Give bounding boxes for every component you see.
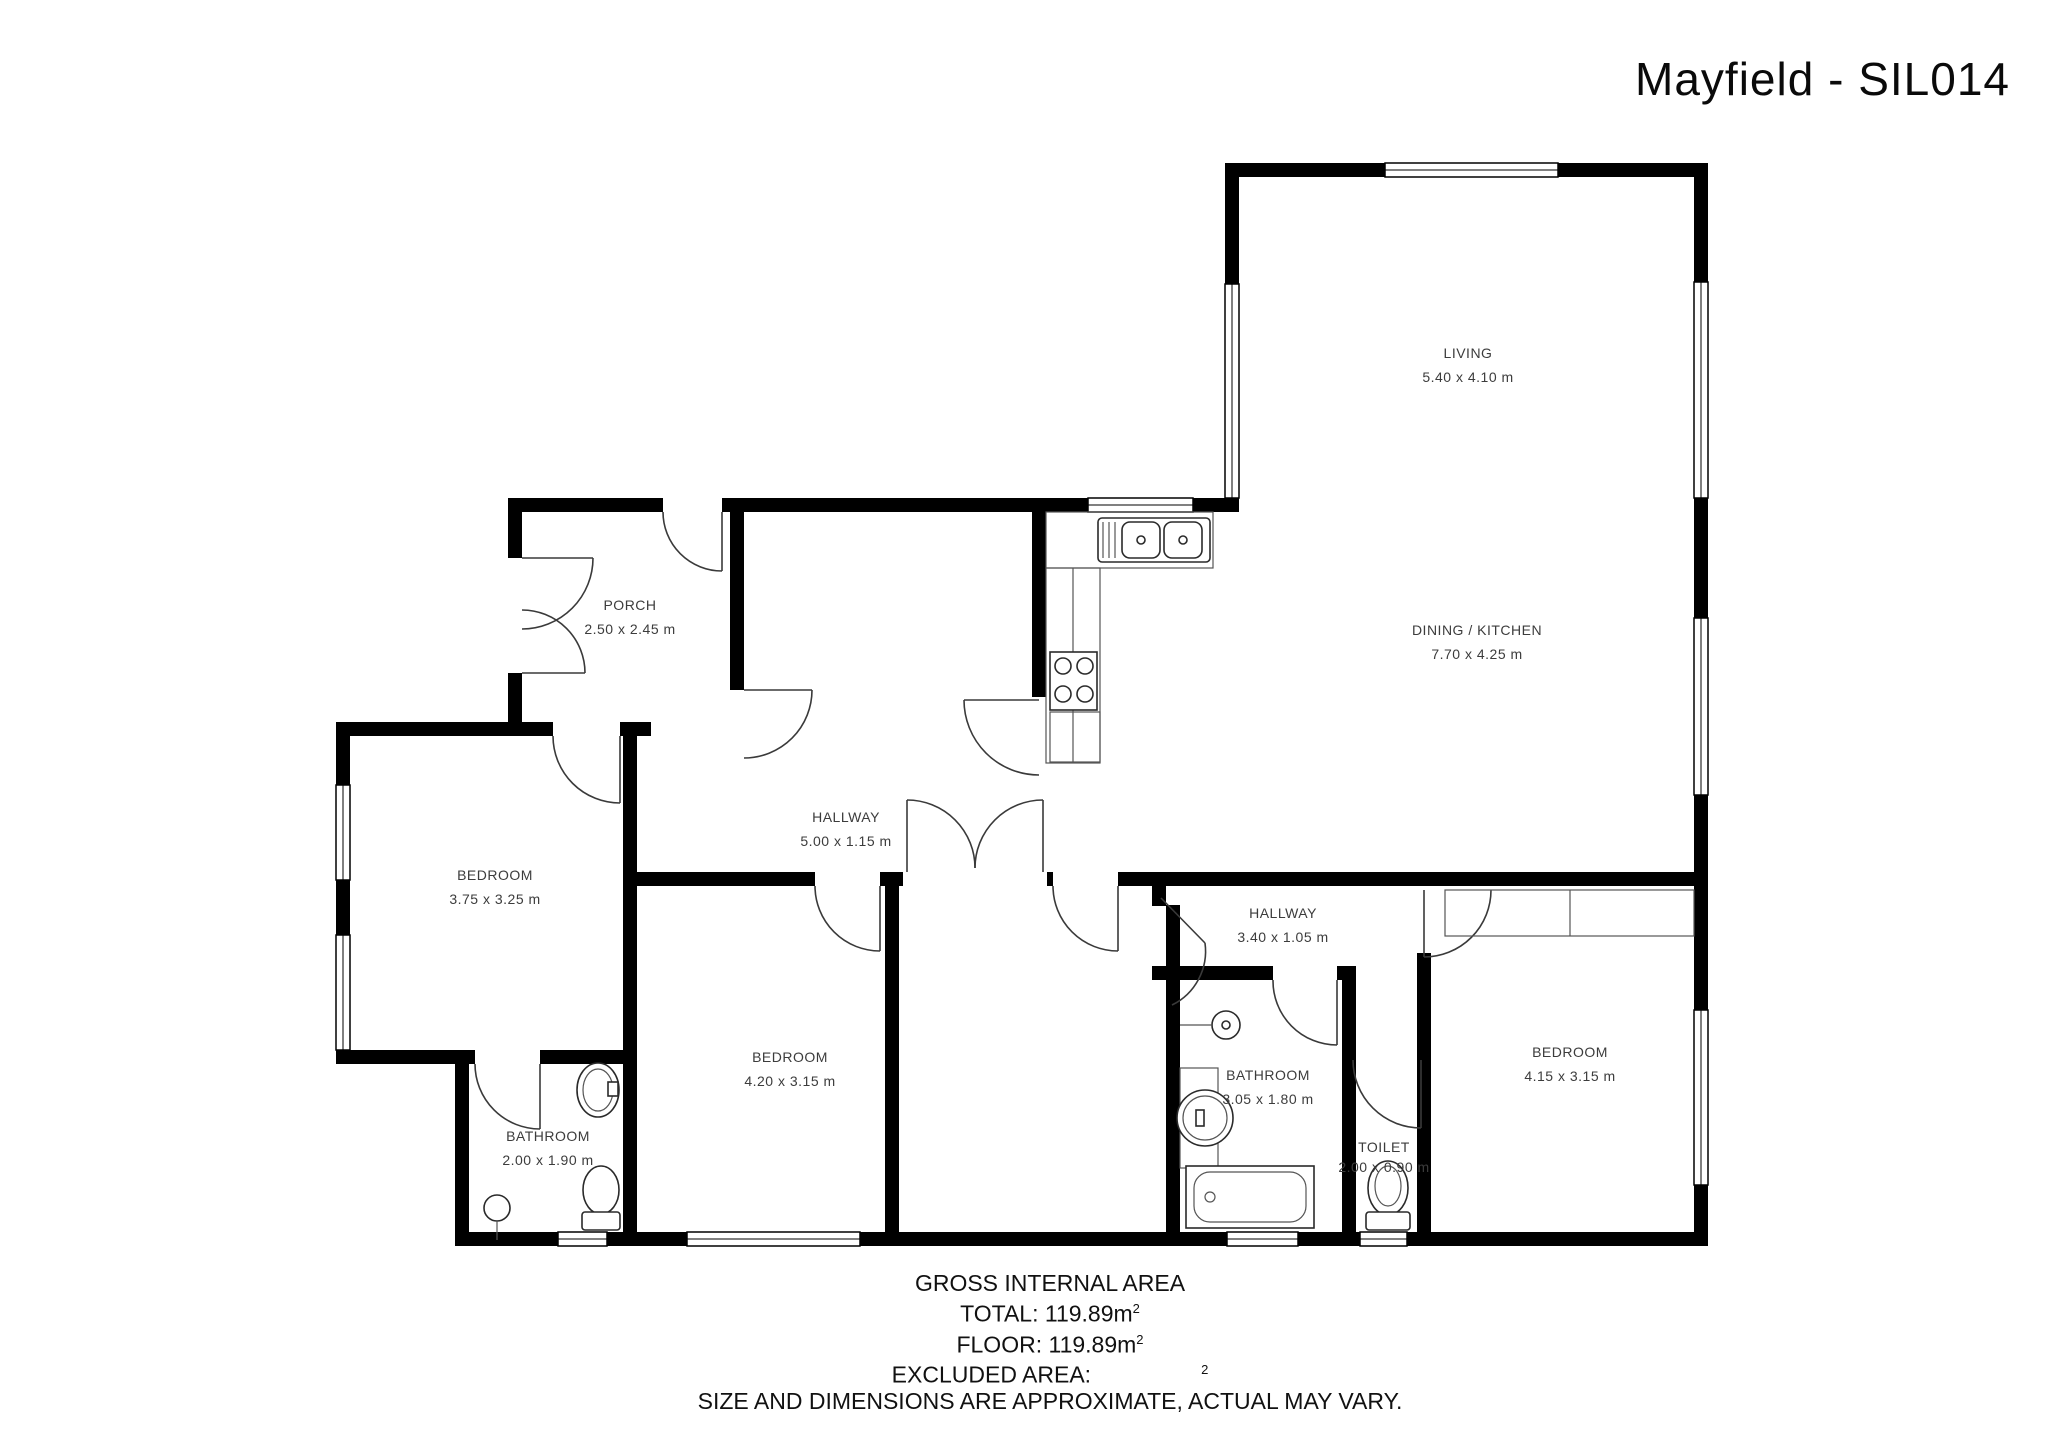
wall <box>540 1050 637 1064</box>
wall <box>1558 163 1708 177</box>
bathroom1-sink-icon <box>577 1063 619 1117</box>
window <box>336 935 350 1050</box>
stove-icon <box>1050 652 1100 762</box>
room-label-bedroom-2: BEDROOM <box>752 1049 828 1065</box>
wall <box>1231 163 1385 177</box>
wall <box>508 498 522 558</box>
wall <box>607 1232 687 1246</box>
wall <box>455 1050 469 1246</box>
wall <box>336 722 553 736</box>
wall <box>1417 953 1431 1246</box>
wall <box>1047 872 1053 886</box>
bedroom1-door <box>553 736 620 803</box>
excluded-area-sup: 2 <box>1201 1362 1208 1377</box>
wall <box>1694 163 1708 282</box>
bathroom2-shower-icon <box>1180 1011 1240 1039</box>
room-label-bedroom-3: BEDROOM <box>1532 1044 1608 1060</box>
window <box>1088 498 1193 512</box>
room-dims-hallway-1: 5.00 x 1.15 m <box>800 833 891 849</box>
room-dims-toilet: 2.00 x 0.90 m <box>1338 1159 1429 1175</box>
room-dims-living: 5.40 x 4.10 m <box>1422 369 1513 385</box>
room-dims-hallway-2: 3.40 x 1.05 m <box>1237 929 1328 945</box>
bedroom2-door <box>815 886 880 951</box>
floorplan-page: { "title": "Mayfield - SIL014", "rooms":… <box>0 0 2048 1448</box>
wall <box>620 722 651 736</box>
walls <box>336 163 1708 1246</box>
wall <box>730 512 744 690</box>
window <box>1360 1232 1407 1246</box>
toilet-door <box>1353 1060 1421 1128</box>
room-label-bathroom-1: BATHROOM <box>506 1128 590 1144</box>
wall <box>1694 498 1708 618</box>
room-dims-porch: 2.50 x 2.45 m <box>584 621 675 637</box>
window <box>1694 618 1708 795</box>
window <box>1694 282 1708 498</box>
window <box>1694 1010 1708 1185</box>
room-dims-bedroom-3: 4.15 x 3.15 m <box>1524 1068 1615 1084</box>
room-dims-dining-kitchen: 7.70 x 4.25 m <box>1431 646 1522 662</box>
windows <box>336 163 1708 1246</box>
wall <box>623 736 637 1246</box>
middle-room-door <box>1053 886 1118 951</box>
kitchen-sink-icon <box>1098 518 1210 562</box>
room-label-bathroom-2: BATHROOM <box>1226 1067 1310 1083</box>
floor-area-text: FLOOR: 119.89m <box>956 1331 1136 1357</box>
wardrobe <box>1445 890 1694 936</box>
wall <box>1118 872 1694 886</box>
gross-internal-area-block: GROSS INTERNAL AREA TOTAL: 119.89m2 FLOO… <box>500 1270 1600 1414</box>
wall <box>1337 966 1356 980</box>
wall <box>336 1050 475 1064</box>
wall <box>336 880 350 935</box>
total-area-text: TOTAL: 119.89m <box>960 1301 1133 1327</box>
room-label-hallway-2: HALLWAY <box>1249 905 1317 921</box>
total-area-sup: 2 <box>1133 1301 1140 1316</box>
window <box>336 785 350 880</box>
wall <box>1152 966 1273 980</box>
room-label-toilet: TOILET <box>1358 1139 1410 1155</box>
excluded-area-text: EXCLUDED AREA: <box>892 1362 1091 1388</box>
bathtub-icon <box>1186 1166 1314 1228</box>
room-dims-bedroom-1: 3.75 x 3.25 m <box>449 891 540 907</box>
disclaimer-line: SIZE AND DIMENSIONS ARE APPROXIMATE, ACT… <box>500 1388 1600 1414</box>
window <box>687 1232 860 1246</box>
bathroom1-toilet-icon <box>582 1166 620 1230</box>
bedroom3-door <box>1424 890 1491 957</box>
floor-area-line: FLOOR: 119.89m2 <box>500 1327 1600 1358</box>
room-label-bedroom-1: BEDROOM <box>457 867 533 883</box>
wall <box>336 736 350 785</box>
wall <box>455 1232 558 1246</box>
wall <box>722 498 1032 512</box>
room-label-dining-kitchen: DINING / KITCHEN <box>1412 622 1542 638</box>
kitchen-door <box>964 700 1039 775</box>
room-label-porch: PORCH <box>603 597 656 613</box>
floorplan-drawing: LIVING 5.40 x 4.10 m DINING / KITCHEN 7.… <box>0 0 2048 1448</box>
wall <box>1694 795 1708 1010</box>
room-dims-bathroom-1: 2.00 x 1.90 m <box>502 1152 593 1168</box>
room-label-living: LIVING <box>1444 345 1493 361</box>
wall <box>1225 163 1239 284</box>
wall <box>1032 498 1088 512</box>
porch-inner-door <box>744 690 812 758</box>
entrance-double-door <box>522 558 593 673</box>
bathroom2-door <box>1273 980 1337 1045</box>
bathroom2-sink-icon <box>1177 1068 1233 1168</box>
room-dims-bedroom-2: 4.20 x 3.15 m <box>744 1073 835 1089</box>
wall <box>1342 966 1356 1246</box>
window <box>1227 1232 1298 1246</box>
bathroom1-door <box>475 1064 540 1129</box>
room-label-hallway-1: HALLWAY <box>812 809 880 825</box>
window <box>558 1232 607 1246</box>
window <box>1385 163 1558 177</box>
room-dims-bathroom-2: 3.05 x 1.80 m <box>1222 1091 1313 1107</box>
floor-area-sup: 2 <box>1136 1332 1143 1347</box>
wall <box>1193 498 1239 512</box>
hallway-double-door <box>907 800 1043 872</box>
wall <box>508 498 663 512</box>
wall <box>637 872 815 886</box>
wall <box>1032 512 1046 697</box>
window <box>1225 284 1239 498</box>
wall <box>1166 905 1180 1246</box>
wall <box>885 872 899 1246</box>
wall <box>1407 1232 1708 1246</box>
porch-exterior-door <box>663 512 722 571</box>
excluded-area-line: EXCLUDED AREA:2 <box>500 1357 1600 1388</box>
gross-internal-area-heading: GROSS INTERNAL AREA <box>500 1270 1600 1296</box>
total-area-line: TOTAL: 119.89m2 <box>500 1296 1600 1327</box>
